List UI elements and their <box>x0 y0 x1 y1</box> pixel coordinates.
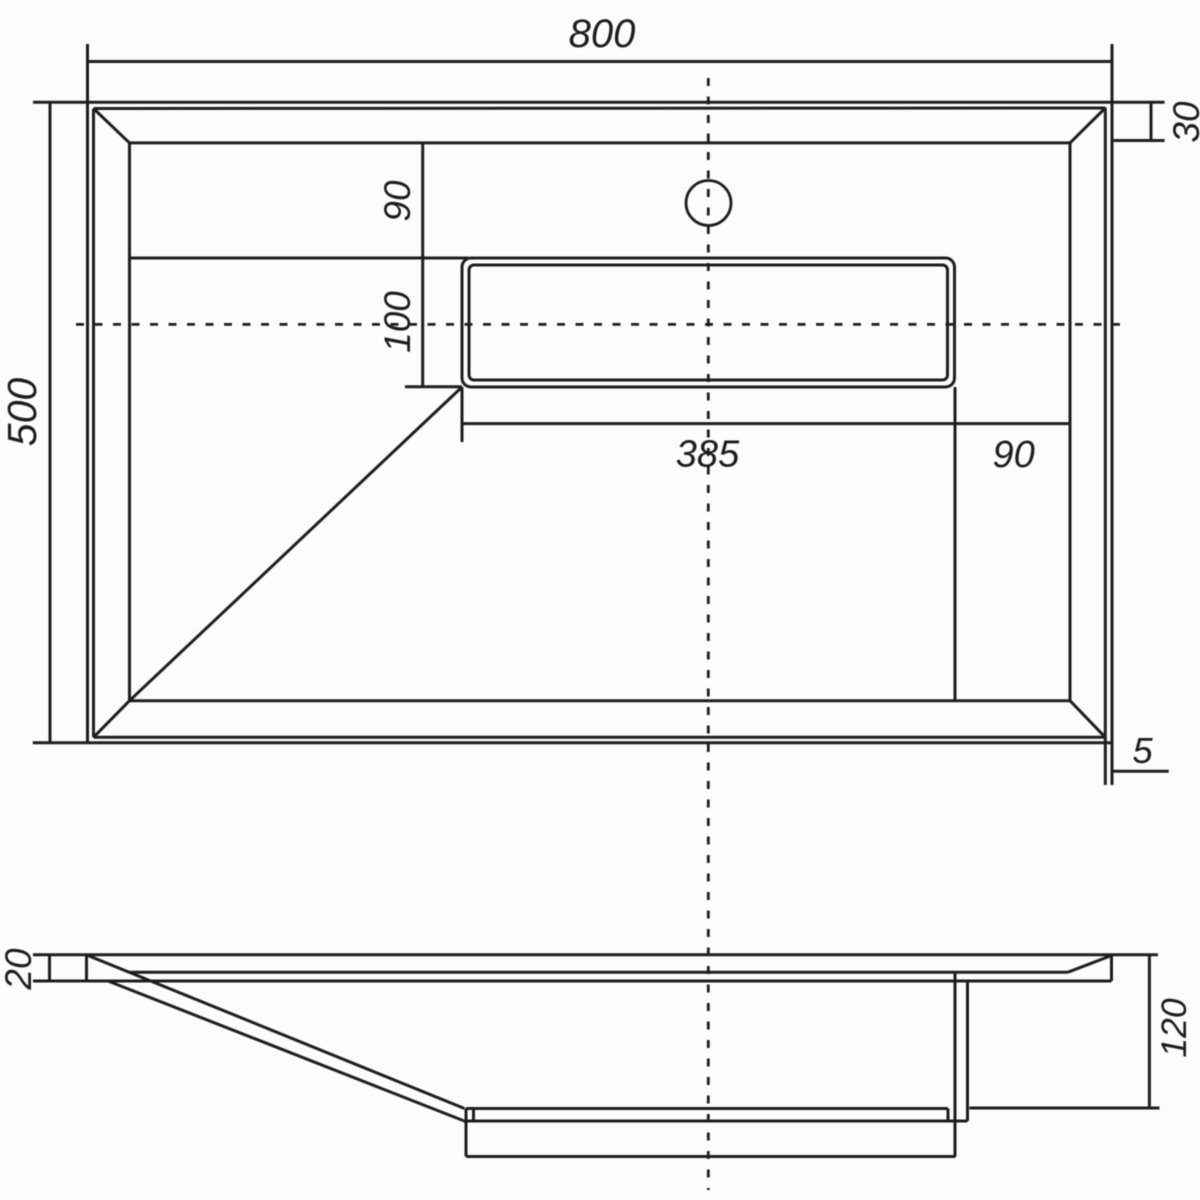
svg-text:800: 800 <box>569 12 636 56</box>
svg-text:120: 120 <box>1154 998 1194 1057</box>
svg-text:20: 20 <box>0 948 39 991</box>
svg-text:500: 500 <box>0 378 45 447</box>
svg-text:90: 90 <box>377 180 418 222</box>
svg-text:385: 385 <box>676 434 740 476</box>
svg-text:5: 5 <box>1132 730 1153 771</box>
svg-text:90: 90 <box>993 434 1035 476</box>
svg-text:30: 30 <box>1166 101 1200 143</box>
svg-text:100: 100 <box>377 291 418 353</box>
